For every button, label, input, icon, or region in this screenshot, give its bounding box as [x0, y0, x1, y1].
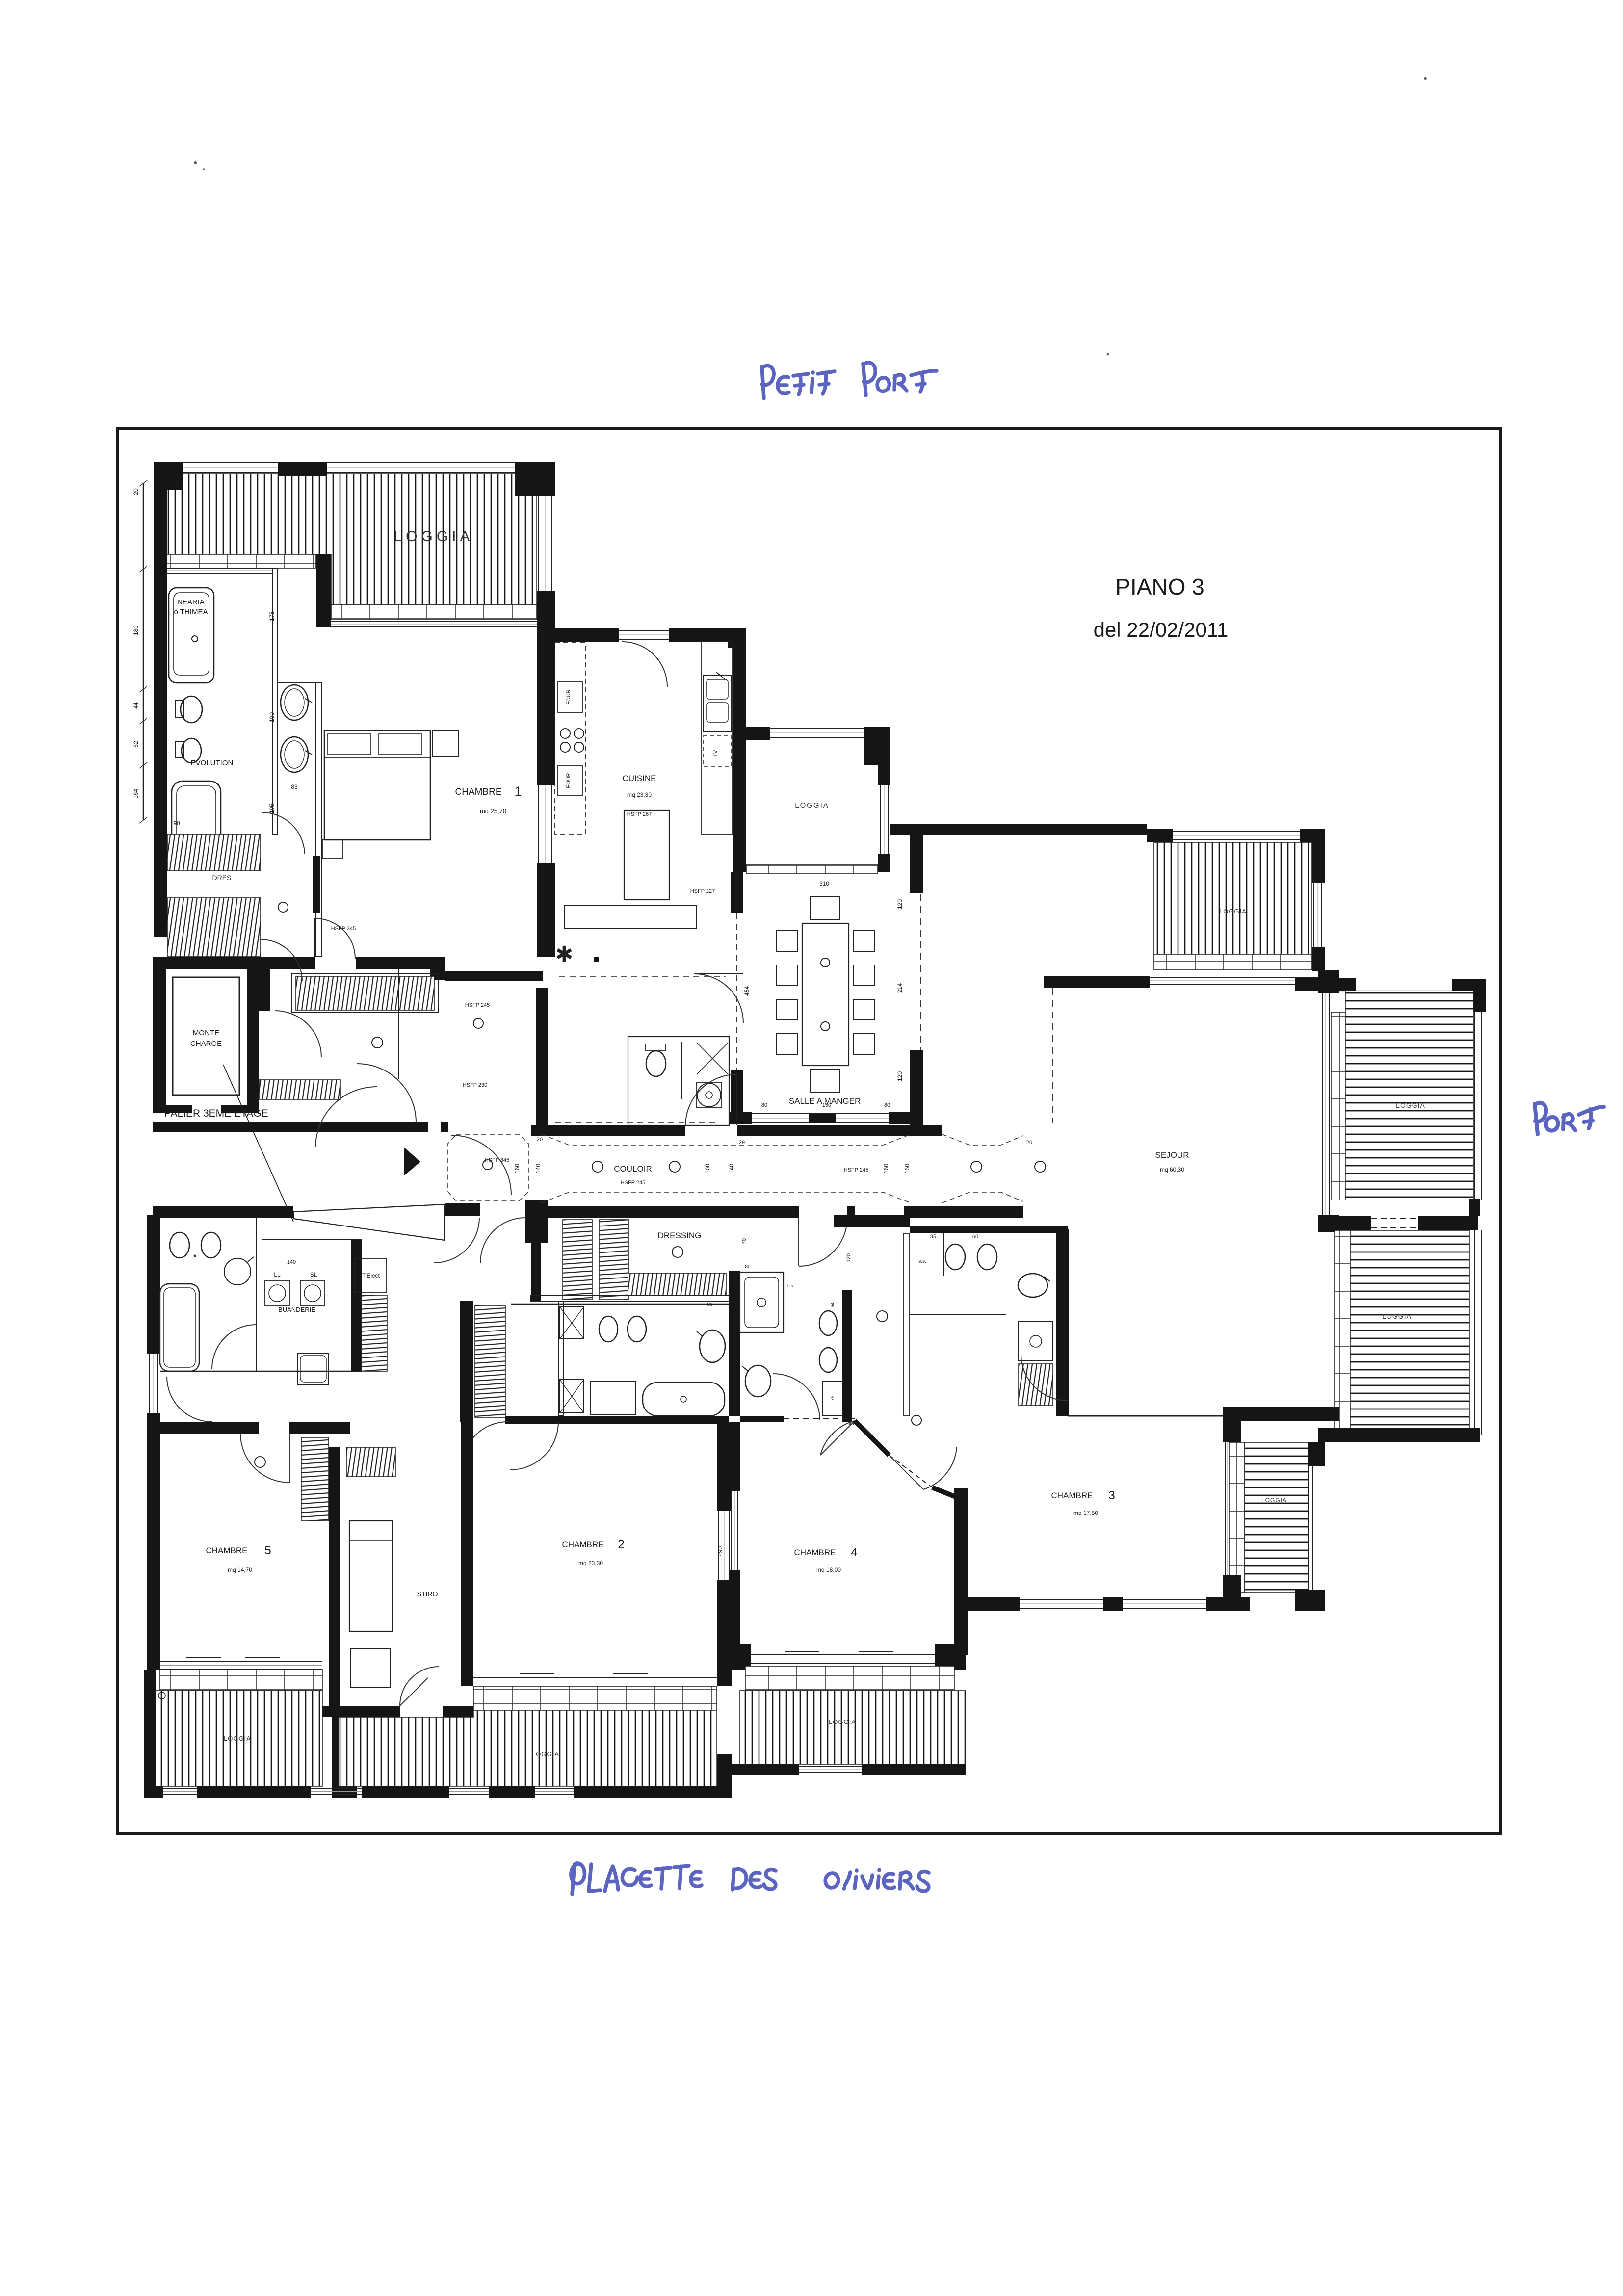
svg-text:160: 160 [704, 1164, 711, 1174]
svg-text:20: 20 [132, 488, 139, 495]
svg-text:160: 160 [883, 1164, 890, 1174]
svg-text:160: 160 [514, 1164, 521, 1174]
svg-text:mq 25,70: mq 25,70 [480, 808, 506, 815]
svg-text:SEJOUR: SEJOUR [1155, 1150, 1189, 1160]
svg-text:150: 150 [822, 1102, 831, 1108]
svg-text:LOGGIA: LOGGIA [224, 1735, 251, 1742]
svg-text:LOGGIA: LOGGIA [795, 801, 829, 809]
svg-text:DRES: DRES [212, 874, 232, 882]
svg-text:s.s.: s.s. [918, 1259, 926, 1264]
svg-text:75: 75 [830, 1395, 836, 1401]
svg-text:HSFP 245: HSFP 245 [844, 1167, 869, 1173]
svg-text:PALIER 3EME ETAGE: PALIER 3EME ETAGE [164, 1108, 268, 1119]
svg-text:CHARGE: CHARGE [190, 1040, 222, 1048]
svg-text:80: 80 [761, 1102, 767, 1108]
svg-text:44: 44 [132, 702, 139, 709]
svg-text:COULOIR: COULOIR [614, 1164, 652, 1174]
svg-text:120: 120 [896, 1071, 903, 1081]
svg-text:454: 454 [743, 986, 750, 996]
svg-text:s.s.: s.s. [787, 1283, 794, 1288]
svg-text:62: 62 [132, 741, 139, 748]
svg-text:29: 29 [739, 1140, 745, 1146]
svg-text:140: 140 [728, 1164, 735, 1174]
svg-text:HSFP 230: HSFP 230 [463, 1082, 488, 1088]
svg-text:175: 175 [268, 611, 275, 621]
svg-text:T.Elect: T.Elect [362, 1272, 380, 1279]
svg-text:CHAMBRE: CHAMBRE [1051, 1491, 1093, 1500]
svg-text:490: 490 [717, 1546, 724, 1556]
svg-text:mq 23,30: mq 23,30 [578, 1560, 603, 1566]
svg-text:CHAMBRE: CHAMBRE [794, 1548, 836, 1557]
svg-text:HSFP 245: HSFP 245 [465, 1002, 490, 1008]
svg-text:80: 80 [884, 1102, 890, 1108]
svg-text:120: 120 [846, 1253, 852, 1262]
svg-text:4: 4 [851, 1546, 857, 1559]
svg-text:64: 64 [830, 1302, 836, 1308]
svg-text:LOGGIA: LOGGIA [1219, 908, 1247, 915]
svg-text:HSFP 245: HSFP 245 [621, 1180, 646, 1186]
svg-text:✱: ✱ [555, 942, 574, 966]
svg-text:LOGGIA: LOGGIA [829, 1718, 856, 1725]
svg-text:140: 140 [535, 1164, 542, 1174]
svg-text:120: 120 [896, 899, 903, 909]
svg-text:mq 23,30: mq 23,30 [627, 791, 652, 798]
svg-text:70: 70 [741, 1238, 747, 1244]
svg-text:85: 85 [930, 1234, 936, 1240]
svg-text:90: 90 [173, 820, 180, 827]
svg-text:140: 140 [287, 1259, 296, 1265]
svg-text:150: 150 [904, 1164, 911, 1174]
svg-text:CHAMBRE: CHAMBRE [455, 787, 501, 797]
svg-text:del 22/02/2011: del 22/02/2011 [1094, 618, 1229, 641]
svg-text:105: 105 [268, 804, 275, 813]
svg-text:310: 310 [819, 880, 829, 887]
svg-text:90: 90 [157, 678, 163, 685]
svg-text:mq 18,00: mq 18,00 [816, 1566, 841, 1573]
svg-text:PIANO 3: PIANO 3 [1115, 574, 1204, 600]
svg-text:BUANDERIE: BUANDERIE [278, 1306, 315, 1313]
svg-text:20: 20 [537, 1137, 543, 1143]
svg-text:NEARIA: NEARIA [177, 598, 205, 606]
svg-text:CUISINE: CUISINE [623, 774, 656, 783]
svg-text:1: 1 [514, 784, 522, 799]
svg-text:214: 214 [896, 983, 903, 993]
svg-text:o THIMEA: o THIMEA [174, 608, 208, 616]
svg-text:STIRO: STIRO [417, 1590, 438, 1598]
svg-text:83: 83 [291, 783, 298, 790]
svg-text:180: 180 [132, 626, 139, 635]
svg-text:120: 120 [158, 795, 165, 805]
svg-text:LOGGIA: LOGGIA [393, 528, 473, 545]
svg-text:mq 60,30: mq 60,30 [1160, 1166, 1184, 1173]
svg-text:LOGGIA: LOGGIA [532, 1750, 559, 1758]
svg-text:HSFP 227: HSFP 227 [690, 888, 715, 894]
svg-text:HSFP 345: HSFP 345 [331, 926, 356, 932]
svg-text:190: 190 [268, 712, 275, 722]
svg-text:110: 110 [732, 1301, 737, 1309]
svg-text:MONTE: MONTE [193, 1029, 219, 1037]
svg-text:FOUR: FOUR [566, 773, 572, 788]
svg-text:80: 80 [745, 1264, 751, 1270]
svg-text:CHAMBRE: CHAMBRE [562, 1540, 603, 1549]
svg-text:20: 20 [1026, 1140, 1032, 1146]
svg-text:EVOLUTION: EVOLUTION [191, 759, 234, 767]
svg-text:80: 80 [707, 1302, 713, 1307]
svg-text:CHAMBRE: CHAMBRE [206, 1546, 247, 1555]
svg-text:LV: LV [713, 750, 719, 756]
svg-text:164: 164 [132, 789, 139, 799]
svg-text:LOGGIA: LOGGIA [1396, 1101, 1425, 1109]
svg-text:FOUR: FOUR [566, 689, 572, 704]
svg-text:mq 14,70: mq 14,70 [228, 1566, 252, 1573]
svg-text:mq 17,50: mq 17,50 [1073, 1510, 1098, 1516]
svg-text:3: 3 [1108, 1489, 1115, 1502]
svg-text:LL: LL [274, 1271, 281, 1278]
svg-text:DRESSING: DRESSING [658, 1231, 702, 1240]
svg-text:5: 5 [264, 1544, 271, 1557]
svg-text:2: 2 [618, 1538, 624, 1551]
svg-text:SL: SL [310, 1271, 317, 1278]
svg-text:LOGGIA: LOGGIA [1261, 1497, 1287, 1504]
svg-text:LOGGIA: LOGGIA [1382, 1312, 1412, 1320]
svg-text:HSFP 267: HSFP 267 [627, 811, 652, 817]
svg-text:60: 60 [972, 1234, 978, 1240]
